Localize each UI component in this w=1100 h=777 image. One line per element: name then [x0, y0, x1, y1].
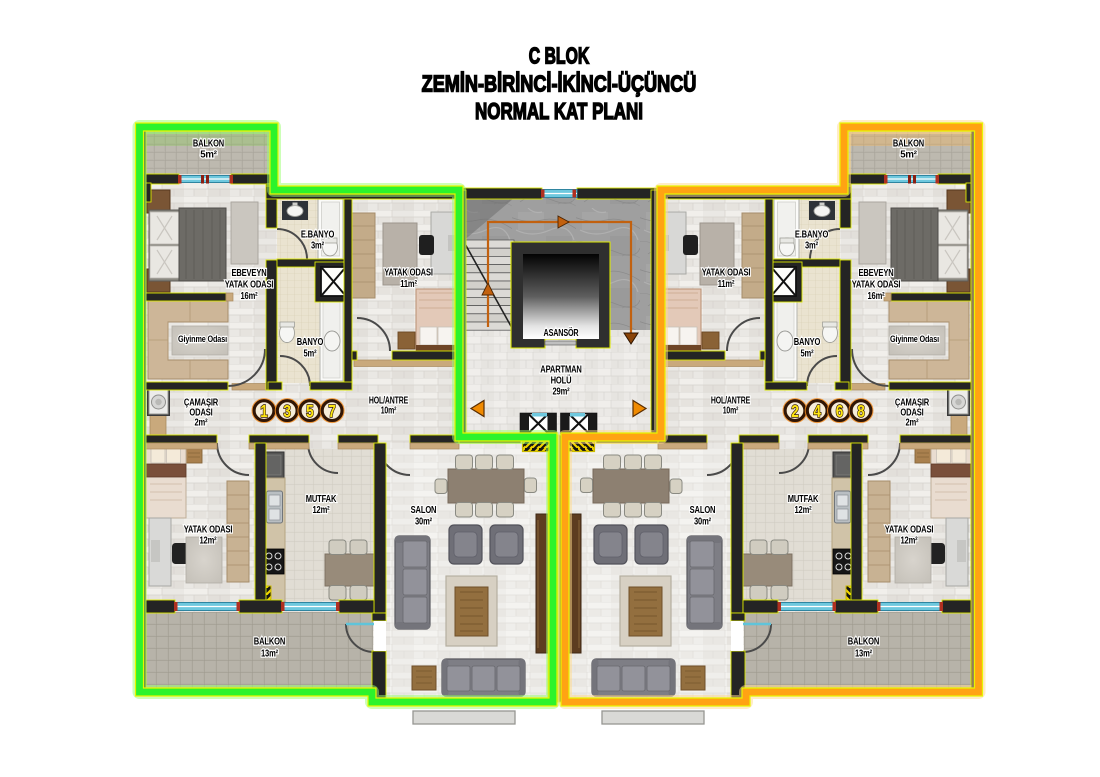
svg-text:EBEVEYN: EBEVEYN — [858, 267, 893, 278]
svg-text:MUTFAK: MUTFAK — [306, 493, 337, 504]
svg-text:YATAK ODASI: YATAK ODASI — [384, 266, 433, 277]
svg-text:E.BANYO: E.BANYO — [795, 228, 828, 239]
svg-text:29m²: 29m² — [552, 385, 569, 396]
svg-text:EBEVEYN: EBEVEYN — [231, 267, 266, 278]
svg-text:ASANSÖR: ASANSÖR — [544, 327, 580, 338]
svg-text:16m²: 16m² — [867, 290, 884, 301]
svg-text:BALKON: BALKON — [193, 137, 224, 149]
svg-text:3m²: 3m² — [311, 239, 324, 250]
svg-text:2: 2 — [791, 402, 799, 421]
svg-text:Giyinme Odası: Giyinme Odası — [890, 333, 939, 344]
svg-text:8: 8 — [857, 402, 865, 421]
svg-text:MUTFAK: MUTFAK — [788, 493, 819, 504]
svg-text:E.BANYO: E.BANYO — [301, 228, 334, 239]
svg-text:3: 3 — [283, 402, 291, 421]
svg-text:BALKON: BALKON — [893, 137, 924, 149]
svg-text:11m²: 11m² — [400, 278, 417, 289]
svg-text:5m²: 5m² — [900, 149, 917, 160]
svg-text:4: 4 — [813, 402, 821, 421]
svg-text:HOLÜ: HOLÜ — [551, 374, 572, 385]
svg-text:30m²: 30m² — [694, 515, 711, 526]
svg-text:16m²: 16m² — [240, 290, 257, 301]
svg-text:12m²: 12m² — [199, 534, 216, 545]
svg-text:13m²: 13m² — [855, 647, 872, 658]
svg-text:APARTMAN: APARTMAN — [540, 363, 581, 374]
svg-text:2m²: 2m² — [195, 416, 208, 427]
svg-text:SALON: SALON — [690, 504, 716, 515]
svg-text:2m²: 2m² — [906, 416, 919, 427]
svg-text:11m²: 11m² — [718, 278, 735, 289]
svg-text:7: 7 — [328, 402, 336, 421]
svg-text:5m²: 5m² — [304, 347, 317, 358]
svg-text:BANYO: BANYO — [794, 336, 821, 347]
svg-text:10m²: 10m² — [723, 404, 739, 416]
svg-text:NORMAL KAT PLANI: NORMAL KAT PLANI — [475, 100, 643, 125]
svg-text:YATAK ODASI: YATAK ODASI — [225, 278, 274, 289]
svg-text:5m²: 5m² — [200, 149, 217, 160]
svg-text:Giyinme Odası: Giyinme Odası — [178, 333, 227, 344]
svg-text:ZEMİN-BİRİNCİ-İKİNCİ-ÜÇÜNCÜ: ZEMİN-BİRİNCİ-İKİNCİ-ÜÇÜNCÜ — [422, 71, 697, 97]
svg-text:1: 1 — [260, 402, 268, 421]
svg-text:3m²: 3m² — [805, 239, 818, 250]
svg-text:12m²: 12m² — [900, 534, 917, 545]
svg-text:YATAK ODASI: YATAK ODASI — [885, 523, 934, 534]
svg-text:10m²: 10m² — [381, 404, 397, 416]
svg-text:5m²: 5m² — [801, 347, 814, 358]
svg-text:5: 5 — [306, 402, 314, 421]
svg-text:C BLOK: C BLOK — [529, 44, 590, 70]
svg-text:BANYO: BANYO — [297, 336, 324, 347]
svg-text:6: 6 — [836, 402, 844, 421]
svg-text:13m²: 13m² — [261, 647, 278, 658]
svg-text:YATAK ODASI: YATAK ODASI — [852, 278, 901, 289]
svg-text:12m²: 12m² — [312, 504, 329, 515]
svg-text:30m²: 30m² — [415, 515, 432, 526]
svg-text:BALKON: BALKON — [254, 635, 285, 646]
svg-text:BALKON: BALKON — [848, 635, 879, 646]
svg-text:SALON: SALON — [411, 504, 437, 515]
svg-text:YATAK ODASI: YATAK ODASI — [184, 523, 233, 534]
svg-text:12m²: 12m² — [794, 504, 811, 515]
svg-text:YATAK ODASI: YATAK ODASI — [702, 266, 751, 277]
